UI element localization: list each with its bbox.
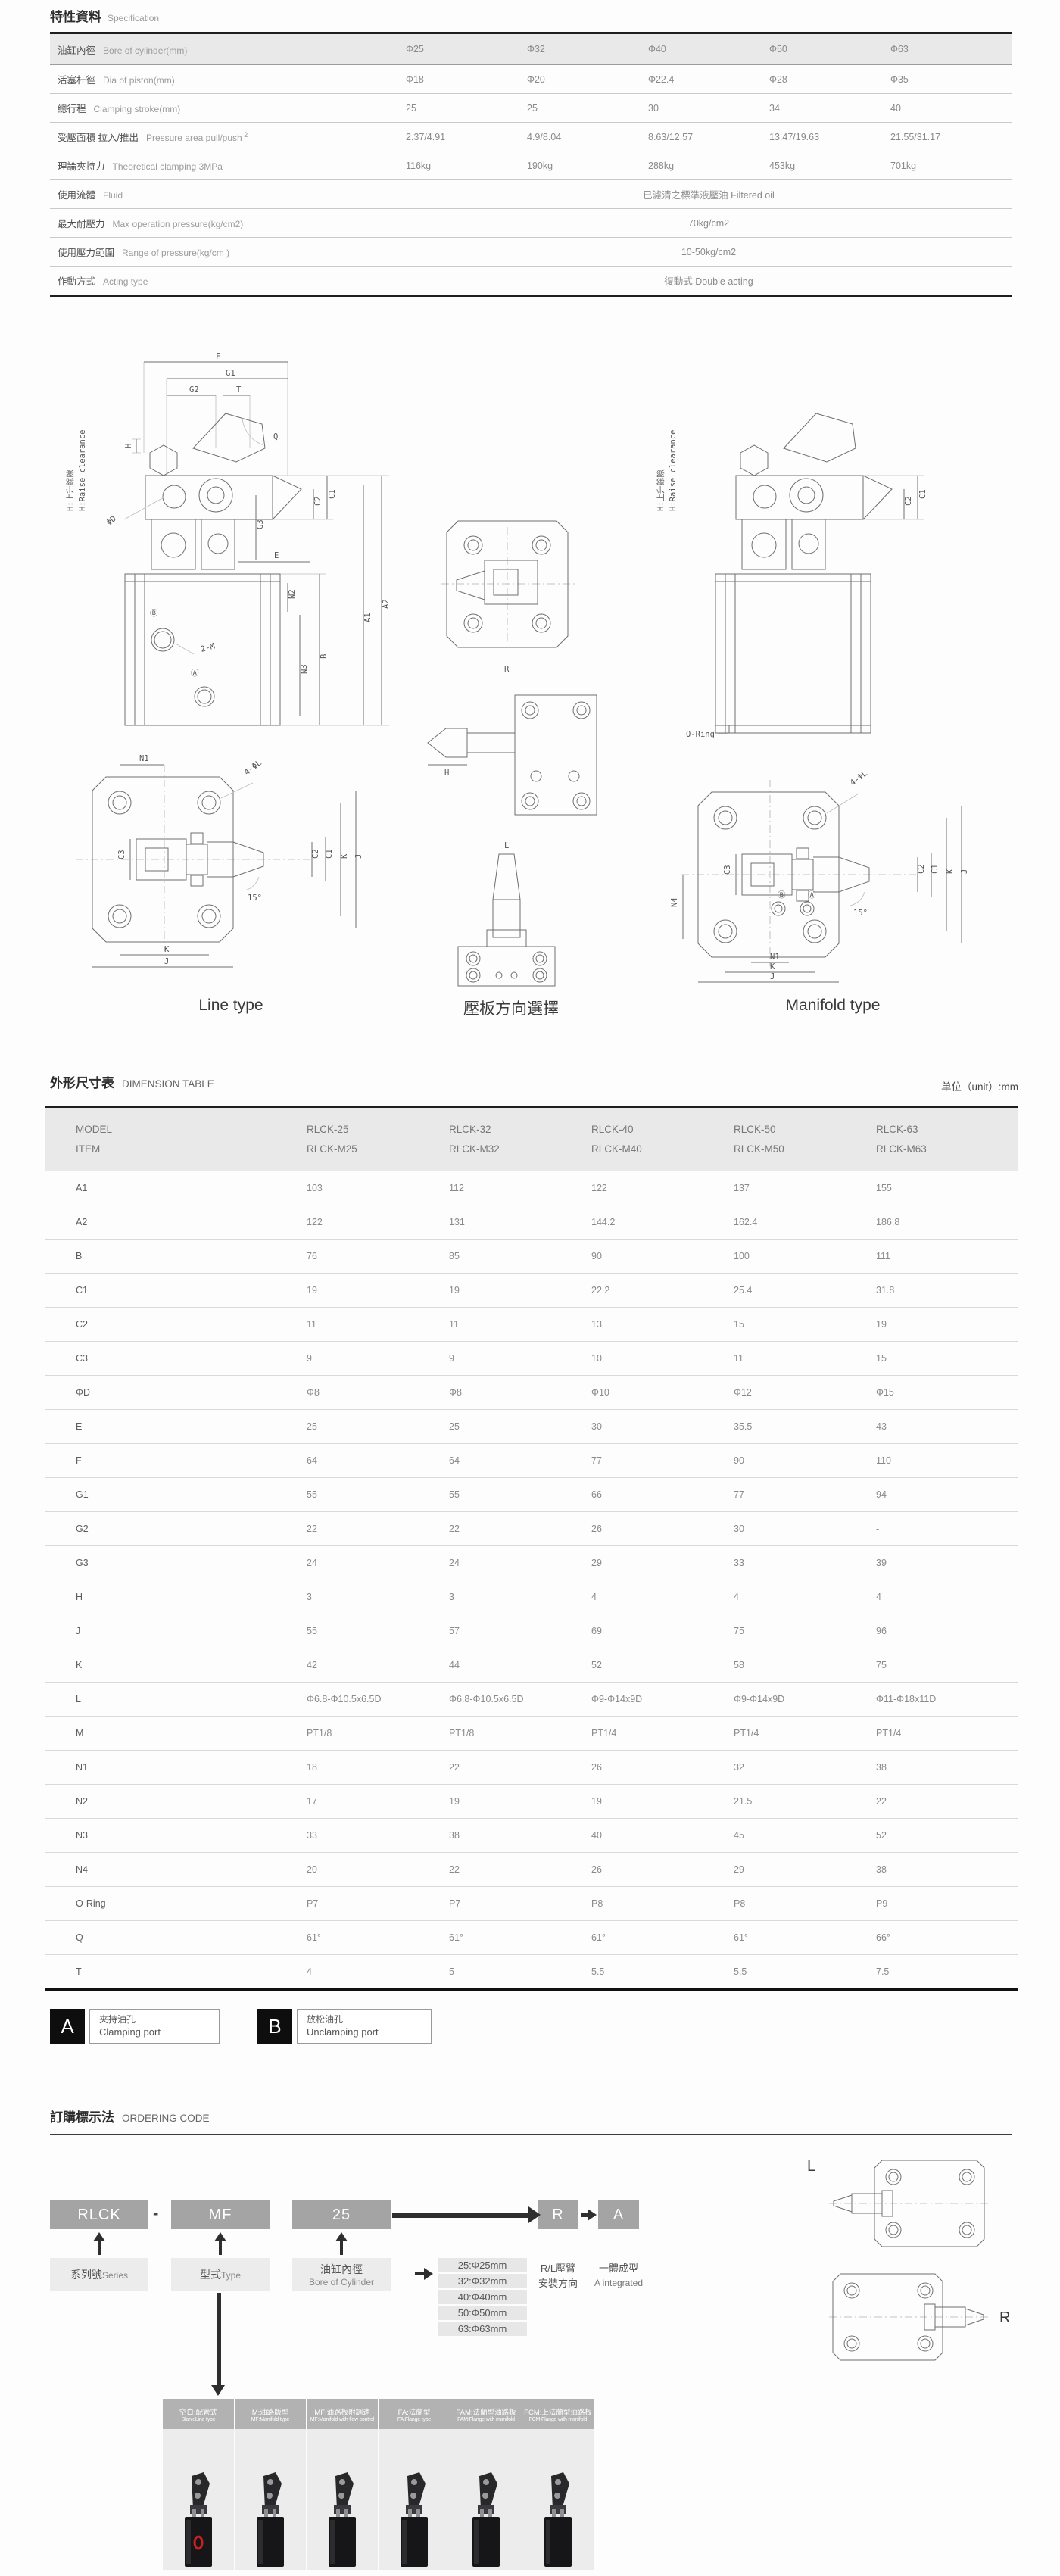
dim-row: G222222630- bbox=[45, 1512, 1018, 1546]
spec-value: 40 bbox=[890, 94, 1012, 123]
dim-value: - bbox=[876, 1512, 1018, 1546]
dim-value: 137 bbox=[734, 1171, 876, 1205]
dimension-label: C1 bbox=[918, 489, 927, 499]
dim-value: 19 bbox=[307, 1274, 449, 1308]
spec-value: Φ63 bbox=[890, 33, 1012, 65]
spec-title-zh: 特性資料 bbox=[50, 10, 101, 24]
product-photo bbox=[235, 2429, 306, 2570]
arrow-up-type-icon bbox=[214, 2232, 226, 2241]
type-label-en: Type bbox=[221, 2270, 241, 2281]
dimension-label: Ⓐ bbox=[191, 669, 199, 678]
product-label-en: Blank:Line type bbox=[164, 2417, 233, 2422]
product-label: FCM:上法蘭型油路板FCM:Flange with manifold bbox=[522, 2399, 594, 2429]
dim-row: N33338404552 bbox=[45, 1819, 1018, 1853]
clamp-product-image bbox=[163, 2472, 234, 2570]
integrated-label: 一體成型 A integrated bbox=[588, 2261, 650, 2290]
dim-value: 22.2 bbox=[591, 1274, 734, 1308]
product-label: MF:油路板附調速MF:Manifold with flow control bbox=[307, 2399, 378, 2429]
dim-value: 25 bbox=[449, 1410, 591, 1444]
dim-value: 75 bbox=[876, 1648, 1018, 1683]
arrow-direction-to-integrated bbox=[581, 2213, 588, 2217]
dimension-label: C2 bbox=[313, 496, 323, 506]
dim-row: K4244525875 bbox=[45, 1648, 1018, 1683]
dimension-label: N1 bbox=[139, 754, 149, 763]
series-label-en: Series bbox=[102, 2270, 128, 2281]
dim-value: 38 bbox=[876, 1853, 1018, 1887]
dimension-label: L bbox=[504, 841, 509, 850]
dim-value: 20 bbox=[307, 1853, 449, 1887]
dim-item: O-Ring bbox=[45, 1887, 307, 1921]
dim-value: 38 bbox=[876, 1751, 1018, 1785]
dim-value: 5.5 bbox=[734, 1955, 876, 1991]
dim-item: ΦD bbox=[45, 1376, 307, 1410]
ordering-title-en: ORDERING CODE bbox=[122, 2113, 210, 2124]
clamp-product-image bbox=[307, 2472, 378, 2570]
spec-value: 70kg/cm2 bbox=[406, 209, 1012, 238]
bore-option: 50:Φ50mm bbox=[438, 2306, 527, 2320]
dimension-label: H bbox=[124, 444, 133, 448]
spec-value: 25 bbox=[527, 94, 648, 123]
dim-item: G2 bbox=[45, 1512, 307, 1546]
spec-row: 使用流體Fluid已濾清之標準液壓油 Filtered oil bbox=[50, 180, 1012, 209]
spec-value: Φ18 bbox=[406, 65, 527, 94]
product-label-en: FAM:Flange with manifold bbox=[451, 2417, 521, 2422]
spec-row: 受壓面積 拉入/推出Pressure area pull/push 22.37/… bbox=[50, 123, 1012, 151]
dim-value: 61° bbox=[307, 1921, 449, 1955]
dim-row: A2122131144.2162.4186.8 bbox=[45, 1205, 1018, 1240]
dimension-label: Q bbox=[273, 432, 278, 441]
dim-value: Φ8 bbox=[449, 1376, 591, 1410]
drawing-line-type-side-view: FG1G2TQHΦDC1C2G3EA1A2BN3N22-MⒷⒶH:上升餘隙H:R… bbox=[61, 333, 401, 742]
dimension-label: H:上升餘隙 bbox=[65, 469, 75, 511]
arrow-head-right-icon bbox=[528, 2206, 541, 2223]
dimension-label: R bbox=[504, 665, 510, 674]
spec-value: 13.47/19.63 bbox=[769, 123, 890, 151]
dimension-label: J bbox=[354, 854, 363, 859]
dim-value: 11 bbox=[734, 1342, 876, 1376]
dim-value: 31.8 bbox=[876, 1274, 1018, 1308]
product-photo bbox=[307, 2429, 378, 2570]
dimension-label: Ⓐ bbox=[808, 890, 816, 900]
port-b-label-en: Unclamping port bbox=[307, 2026, 422, 2038]
dim-value: PT1/8 bbox=[307, 1717, 449, 1751]
dim-item: N4 bbox=[45, 1853, 307, 1887]
dim-value: Φ15 bbox=[876, 1376, 1018, 1410]
dim-value: 19 bbox=[591, 1785, 734, 1819]
dim-item: C3 bbox=[45, 1342, 307, 1376]
dim-value: 55 bbox=[307, 1478, 449, 1512]
clamp-product-image bbox=[379, 2472, 450, 2570]
dim-row: J5557697596 bbox=[45, 1614, 1018, 1648]
dim-value: 76 bbox=[307, 1240, 449, 1274]
dim-value: 25.4 bbox=[734, 1274, 876, 1308]
dim-item: E bbox=[45, 1410, 307, 1444]
dimension-label: N1 bbox=[770, 953, 780, 962]
dim-item: N1 bbox=[45, 1751, 307, 1785]
arrow-type-to-products-icon bbox=[211, 2385, 225, 2396]
product-label-en: FA:Flange type bbox=[379, 2417, 449, 2422]
dim-value: 26 bbox=[591, 1853, 734, 1887]
dimension-label: C2 bbox=[917, 864, 926, 874]
clamp-product-image bbox=[450, 2472, 522, 2570]
dim-value: 4 bbox=[591, 1580, 734, 1614]
dimension-label: O-Ring bbox=[686, 730, 715, 739]
dim-value: 4 bbox=[876, 1580, 1018, 1614]
dim-value: 77 bbox=[734, 1478, 876, 1512]
dim-value: 42 bbox=[307, 1648, 449, 1683]
dim-value: 11 bbox=[449, 1308, 591, 1342]
dimension-label: N3 bbox=[300, 664, 309, 674]
dimension-label: C2 bbox=[311, 849, 320, 859]
spec-row-label: 理論夾持力Theoretical clamping 3MPa bbox=[50, 151, 406, 180]
spec-value: 2.37/4.91 bbox=[406, 123, 527, 151]
dim-value: 7.5 bbox=[876, 1955, 1018, 1991]
dim-item: A1 bbox=[45, 1171, 307, 1205]
dim-item: A2 bbox=[45, 1205, 307, 1240]
port-a-key: A bbox=[50, 2009, 85, 2044]
dim-item: G1 bbox=[45, 1478, 307, 1512]
dim-header-model: RLCK-25RLCK-M25 bbox=[307, 1107, 449, 1172]
dimension-label: ΦD bbox=[104, 514, 117, 527]
drawing-clamp-direction-views: RHL bbox=[413, 515, 609, 992]
dim-value: 61° bbox=[734, 1921, 876, 1955]
dim-item: J bbox=[45, 1614, 307, 1648]
spec-value: 116kg bbox=[406, 151, 527, 180]
dim-row: LΦ6.8-Φ10.5x6.5DΦ6.8-Φ10.5x6.5DΦ9-Φ14x9D… bbox=[45, 1683, 1018, 1717]
spec-value: 453kg bbox=[769, 151, 890, 180]
order-code-type: MF bbox=[171, 2200, 270, 2229]
dim-value: 18 bbox=[307, 1751, 449, 1785]
dimension-label: J bbox=[770, 972, 775, 981]
dimension-label: G3 bbox=[256, 519, 265, 529]
arrow-up-type-stem bbox=[219, 2241, 222, 2255]
dim-item: G3 bbox=[45, 1546, 307, 1580]
dim-value: P7 bbox=[449, 1887, 591, 1921]
dim-item: H bbox=[45, 1580, 307, 1614]
arrow-up-bore-icon bbox=[335, 2232, 348, 2241]
dim-header-model: RLCK-63RLCK-M63 bbox=[876, 1107, 1018, 1172]
spec-row: 總行程Clamping stroke(mm)2525303440 bbox=[50, 94, 1012, 123]
dimension-title-en: DIMENSION TABLE bbox=[122, 1078, 214, 1090]
ordering-title-zh: 訂購標示法 bbox=[50, 2110, 114, 2125]
dim-value: Φ8 bbox=[307, 1376, 449, 1410]
dim-value: 15 bbox=[876, 1342, 1018, 1376]
dim-row: N42022262938 bbox=[45, 1853, 1018, 1887]
dim-value: P8 bbox=[734, 1887, 876, 1921]
spec-row-label: 油缸內徑Bore of cylinder(mm) bbox=[50, 33, 406, 65]
dim-value: 9 bbox=[449, 1342, 591, 1376]
order-code-integrated: A bbox=[598, 2200, 639, 2229]
dim-row: A1103112122137155 bbox=[45, 1171, 1018, 1205]
dim-item: F bbox=[45, 1444, 307, 1478]
ordering-section-title: 訂購標示法ORDERING CODE bbox=[50, 2107, 210, 2125]
ordering-rule bbox=[50, 2134, 1012, 2135]
dim-value: Φ10 bbox=[591, 1376, 734, 1410]
product-type-row: 空白:配管式Blank:Line typeM:油路版型MF:Manifold t… bbox=[163, 2399, 594, 2570]
dim-value: 58 bbox=[734, 1648, 876, 1683]
dim-value: 19 bbox=[876, 1308, 1018, 1342]
dim-value: 112 bbox=[449, 1171, 591, 1205]
bore-option: 40:Φ40mm bbox=[438, 2290, 527, 2304]
dimension-label: 4-ΦL bbox=[848, 769, 868, 787]
bore-options-list: 25:Φ25mm32:Φ32mm40:Φ40mm50:Φ50mm63:Φ63mm bbox=[438, 2258, 527, 2337]
product-card: FAM:法蘭型油路板FAM:Flange with manifold bbox=[450, 2399, 522, 2570]
dim-value: 29 bbox=[734, 1853, 876, 1887]
dimension-label: T bbox=[236, 385, 242, 395]
dimension-label: N2 bbox=[288, 589, 297, 599]
spec-value: 4.9/8.04 bbox=[527, 123, 648, 151]
dim-row: O-RingP7P7P8P8P9 bbox=[45, 1887, 1018, 1921]
dim-item: C1 bbox=[45, 1274, 307, 1308]
spec-value: Φ20 bbox=[527, 65, 648, 94]
port-a-label: 夹持油孔 Clamping port bbox=[89, 2009, 220, 2044]
spec-value: 已濾清之標準液壓油 Filtered oil bbox=[406, 180, 1012, 209]
dimension-table-header: MODELITEMRLCK-25RLCK-M25RLCK-32RLCK-M32R… bbox=[45, 1107, 1018, 1172]
spec-row-label: 作動方式Acting type bbox=[50, 267, 406, 296]
dim-value: 144.2 bbox=[591, 1205, 734, 1240]
dim-item: L bbox=[45, 1683, 307, 1717]
dim-value: 4 bbox=[307, 1955, 449, 1991]
dimension-label: N4 bbox=[670, 897, 679, 907]
dimension-label: G2 bbox=[189, 385, 199, 395]
product-photo bbox=[450, 2429, 522, 2570]
spec-row-label: 使用流體Fluid bbox=[50, 180, 406, 209]
dim-value: Φ12 bbox=[734, 1376, 876, 1410]
product-label-zh: FAM:法蘭型油路板 bbox=[451, 2406, 521, 2417]
dim-value: 55 bbox=[307, 1614, 449, 1648]
dimension-label: 15° bbox=[853, 909, 868, 918]
dim-value: 75 bbox=[734, 1614, 876, 1648]
dim-value: P7 bbox=[307, 1887, 449, 1921]
product-card: FCM:上法蘭型油路板FCM:Flange with manifold bbox=[522, 2399, 594, 2570]
dim-row: T455.55.57.5 bbox=[45, 1955, 1018, 1991]
datasheet-page: 特性資料Specification 油缸內徑Bore of cylinder(m… bbox=[0, 0, 1060, 2576]
arrow-bore-options-icon bbox=[424, 2268, 433, 2280]
dimension-label: Ⓑ bbox=[778, 890, 786, 900]
spec-value: Φ50 bbox=[769, 33, 890, 65]
dim-value: 32 bbox=[734, 1751, 876, 1785]
dim-value: 11 bbox=[307, 1308, 449, 1342]
dim-value: 162.4 bbox=[734, 1205, 876, 1240]
dimension-label: E bbox=[274, 551, 279, 560]
spec-value: Φ28 bbox=[769, 65, 890, 94]
dim-value: 90 bbox=[734, 1444, 876, 1478]
dim-value: 13 bbox=[591, 1308, 734, 1342]
dim-value: 77 bbox=[591, 1444, 734, 1478]
spec-value: 288kg bbox=[648, 151, 769, 180]
type-label: 型式Type bbox=[171, 2258, 270, 2291]
dim-row: C21111131519 bbox=[45, 1308, 1018, 1342]
dim-value: 24 bbox=[307, 1546, 449, 1580]
dimension-label: 15° bbox=[248, 893, 262, 903]
dim-value: 22 bbox=[876, 1785, 1018, 1819]
dim-value: 26 bbox=[591, 1751, 734, 1785]
dim-value: 15 bbox=[734, 1308, 876, 1342]
dim-value: 69 bbox=[591, 1614, 734, 1648]
dim-value: Φ6.8-Φ10.5x6.5D bbox=[307, 1683, 449, 1717]
dimension-label: Ⓑ bbox=[150, 609, 158, 618]
order-code-series: RLCK bbox=[50, 2200, 148, 2229]
dim-value: P9 bbox=[876, 1887, 1018, 1921]
spec-value: Φ22.4 bbox=[648, 65, 769, 94]
dim-value: 29 bbox=[591, 1546, 734, 1580]
dim-row: F64647790110 bbox=[45, 1444, 1018, 1478]
dim-value: 186.8 bbox=[876, 1205, 1018, 1240]
dimension-label: K bbox=[340, 853, 349, 859]
product-label: FAM:法蘭型油路板FAM:Flange with manifold bbox=[450, 2399, 522, 2429]
spec-row: 活塞杆徑Dia of piston(mm)Φ18Φ20Φ22.4Φ28Φ35 bbox=[50, 65, 1012, 94]
dim-row: N217191921.522 bbox=[45, 1785, 1018, 1819]
dim-value: 3 bbox=[449, 1580, 591, 1614]
dim-value: 24 bbox=[449, 1546, 591, 1580]
dim-value: 100 bbox=[734, 1240, 876, 1274]
port-b-label: 放松油孔 Unclamping port bbox=[297, 2009, 432, 2044]
direction-label: R/L壓臂 安裝方向 bbox=[532, 2261, 585, 2291]
clamp-product-image bbox=[235, 2472, 306, 2570]
dim-value: 103 bbox=[307, 1171, 449, 1205]
direction-label-zh2: 安裝方向 bbox=[532, 2276, 585, 2291]
dim-value: 30 bbox=[591, 1410, 734, 1444]
dim-value: 52 bbox=[591, 1648, 734, 1683]
bore-label: 油缸內徑 Bore of Cylinder bbox=[292, 2258, 391, 2291]
dimension-label: H:Raise clearance bbox=[669, 430, 678, 511]
dim-value: 64 bbox=[449, 1444, 591, 1478]
product-card: FA:法蘭型FA:Flange type bbox=[379, 2399, 450, 2570]
dim-value: 26 bbox=[591, 1512, 734, 1546]
dim-value: 52 bbox=[876, 1819, 1018, 1853]
dim-value: Φ6.8-Φ10.5x6.5D bbox=[449, 1683, 591, 1717]
dim-value: 5.5 bbox=[591, 1955, 734, 1991]
dim-value: 4 bbox=[734, 1580, 876, 1614]
dimension-section-title: 外形尺寸表DIMENSION TABLE bbox=[50, 1072, 214, 1091]
series-label-zh: 系列號 bbox=[70, 2269, 102, 2281]
dim-header-model: RLCK-40RLCK-M40 bbox=[591, 1107, 734, 1172]
dim-value: 10 bbox=[591, 1342, 734, 1376]
dim-value: 66° bbox=[876, 1921, 1018, 1955]
product-label: FA:法蘭型FA:Flange type bbox=[379, 2399, 450, 2429]
dim-row: Q61°61°61°61°66° bbox=[45, 1921, 1018, 1955]
spec-value: 30 bbox=[648, 94, 769, 123]
integrated-label-en: A integrated bbox=[588, 2276, 650, 2290]
port-b-key: B bbox=[257, 2009, 292, 2044]
dim-value: 96 bbox=[876, 1614, 1018, 1648]
product-label-en: FCM:Flange with manifold bbox=[523, 2417, 593, 2422]
dim-value: 22 bbox=[449, 1751, 591, 1785]
spec-row: 最大耐壓力Max operation pressure(kg/cm2)70kg/… bbox=[50, 209, 1012, 238]
dim-value: 66 bbox=[591, 1478, 734, 1512]
dim-row: ΦDΦ8Φ8Φ10Φ12Φ15 bbox=[45, 1376, 1018, 1410]
product-label-zh: M:油路版型 bbox=[235, 2406, 305, 2417]
dim-value: 5 bbox=[449, 1955, 591, 1991]
clamp-product-image bbox=[522, 2472, 594, 2570]
product-label-zh: 空白:配管式 bbox=[164, 2406, 233, 2417]
dim-item: K bbox=[45, 1648, 307, 1683]
spec-title-en: Specification bbox=[108, 13, 159, 23]
port-b-label-zh: 放松油孔 bbox=[307, 2013, 422, 2026]
dim-item: N3 bbox=[45, 1819, 307, 1853]
arrow-up-bore-stem bbox=[340, 2241, 343, 2255]
dim-value: PT1/8 bbox=[449, 1717, 591, 1751]
dim-value: 90 bbox=[591, 1240, 734, 1274]
dim-value: 3 bbox=[307, 1580, 449, 1614]
dimension-label: C1 bbox=[931, 864, 940, 874]
caption-clamp-direction: 壓板方向選擇 bbox=[428, 996, 594, 1019]
dim-header-item: MODELITEM bbox=[45, 1107, 307, 1172]
dim-item: M bbox=[45, 1717, 307, 1751]
series-label: 系列號Series bbox=[50, 2258, 148, 2291]
dimension-title-zh: 外形尺寸表 bbox=[50, 1076, 114, 1090]
mount-left-label: L bbox=[807, 2158, 815, 2175]
dim-value: P8 bbox=[591, 1887, 734, 1921]
dim-value: 85 bbox=[449, 1240, 591, 1274]
dim-value: PT1/4 bbox=[591, 1717, 734, 1751]
dim-item: N2 bbox=[45, 1785, 307, 1819]
spec-row-label: 活塞杆徑Dia of piston(mm) bbox=[50, 65, 406, 94]
dim-row: B768590100111 bbox=[45, 1240, 1018, 1274]
product-card: 空白:配管式Blank:Line type bbox=[163, 2399, 234, 2570]
dim-value: 94 bbox=[876, 1478, 1018, 1512]
dimension-label: K bbox=[164, 945, 170, 954]
dim-value: Φ9-Φ14x9D bbox=[734, 1683, 876, 1717]
dimension-label: G1 bbox=[226, 369, 235, 378]
product-label-en: MF:Manifold with flow control bbox=[307, 2417, 377, 2422]
spec-row-label: 受壓面積 拉入/推出Pressure area pull/push 2 bbox=[50, 123, 406, 151]
dim-value: PT1/4 bbox=[734, 1717, 876, 1751]
spec-value: Φ35 bbox=[890, 65, 1012, 94]
spec-value: 8.63/12.57 bbox=[648, 123, 769, 151]
spec-value: Φ40 bbox=[648, 33, 769, 65]
dimension-label: C1 bbox=[325, 849, 334, 859]
bore-label-en: Bore of Cylinder bbox=[309, 2277, 374, 2288]
dim-value: Φ9-Φ14x9D bbox=[591, 1683, 734, 1717]
order-code-direction: R bbox=[538, 2200, 578, 2229]
dim-row: G32424293339 bbox=[45, 1546, 1018, 1580]
product-photo bbox=[163, 2429, 234, 2570]
dim-row: N11822263238 bbox=[45, 1751, 1018, 1785]
dimension-label: B bbox=[320, 654, 329, 659]
product-label-zh: FA:法蘭型 bbox=[379, 2406, 449, 2417]
dim-row: G15555667794 bbox=[45, 1478, 1018, 1512]
spec-value: 10-50kg/cm2 bbox=[406, 238, 1012, 267]
dim-value: 44 bbox=[449, 1648, 591, 1683]
dim-item: T bbox=[45, 1955, 307, 1991]
port-a-label-en: Clamping port bbox=[99, 2026, 210, 2038]
spec-row: 油缸內徑Bore of cylinder(mm)Φ25Φ32Φ40Φ50Φ63 bbox=[50, 33, 1012, 65]
dim-row: H33444 bbox=[45, 1580, 1018, 1614]
arrow-head-right-small-icon bbox=[588, 2209, 597, 2221]
dim-value: 33 bbox=[307, 1819, 449, 1853]
dim-value: 35.5 bbox=[734, 1410, 876, 1444]
bore-label-zh: 油缸內徑 bbox=[320, 2262, 363, 2277]
arrow-up-series-stem bbox=[98, 2241, 101, 2255]
dim-item: Q bbox=[45, 1921, 307, 1955]
arrow-bore-to-direction bbox=[392, 2213, 530, 2218]
dim-value: 111 bbox=[876, 1240, 1018, 1274]
product-label-zh: FCM:上法蘭型油路板 bbox=[523, 2406, 593, 2417]
dimension-label: H:上升餘隙 bbox=[656, 469, 666, 511]
dimension-label: C3 bbox=[723, 865, 732, 875]
spec-table: 油缸內徑Bore of cylinder(mm)Φ25Φ32Φ40Φ50Φ63活… bbox=[50, 32, 1012, 297]
dim-header-model: RLCK-50RLCK-M50 bbox=[734, 1107, 876, 1172]
direction-label-zh: R/L壓臂 bbox=[532, 2261, 585, 2276]
dimension-label: J bbox=[164, 957, 169, 966]
dim-value: 30 bbox=[734, 1512, 876, 1546]
arrow-up-series-icon bbox=[93, 2232, 105, 2241]
dimension-label: A2 bbox=[382, 599, 391, 609]
dim-value: 43 bbox=[876, 1410, 1018, 1444]
spec-row: 作動方式Acting type復動式 Double acting bbox=[50, 267, 1012, 296]
bore-option: 25:Φ25mm bbox=[438, 2258, 527, 2272]
